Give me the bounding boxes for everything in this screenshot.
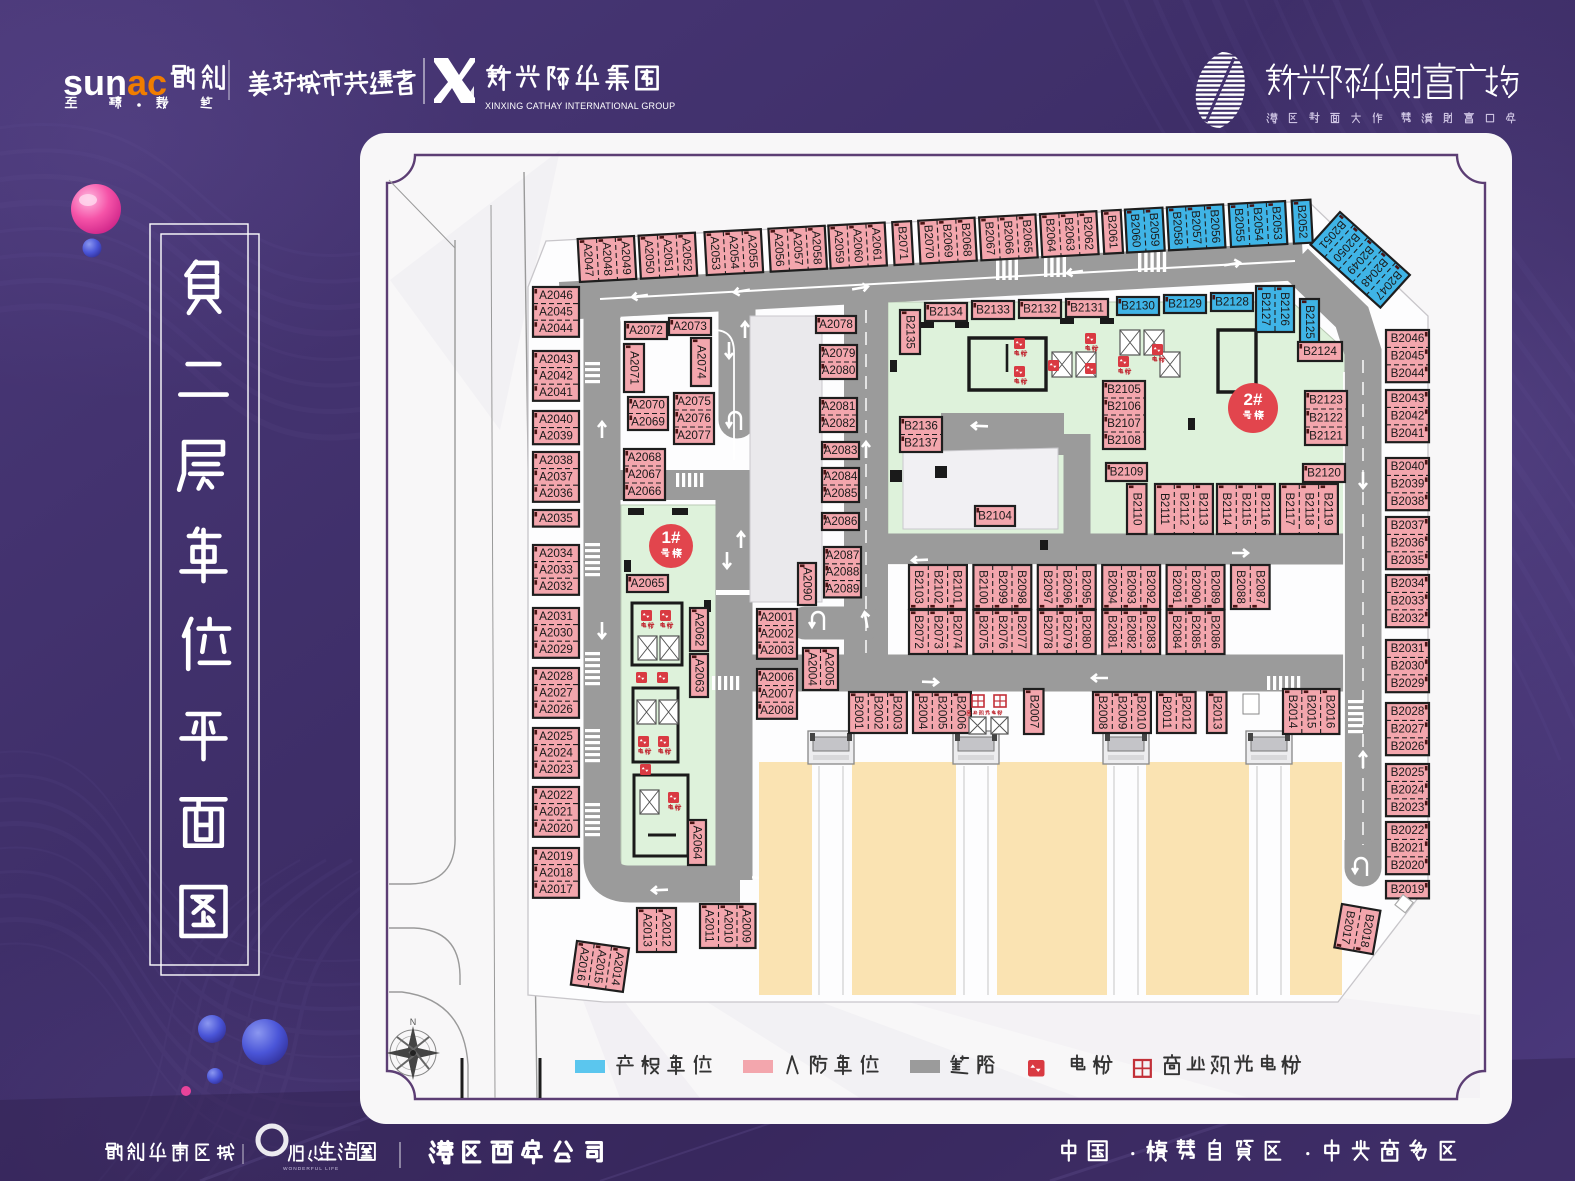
svg-text:B2065: B2065 — [1020, 219, 1035, 254]
svg-text:B2037: B2037 — [1391, 519, 1425, 532]
svg-text:B2012: B2012 — [1180, 696, 1193, 730]
svg-text:WONDERFUL LIFE: WONDERFUL LIFE — [283, 1166, 339, 1172]
svg-text:A2051: A2051 — [660, 238, 675, 272]
svg-text:A2049: A2049 — [618, 241, 633, 275]
svg-text:B2032: B2032 — [1391, 612, 1425, 625]
svg-text:B2023: B2023 — [1391, 801, 1425, 814]
svg-text:A2010: A2010 — [721, 909, 734, 943]
svg-text:B2135: B2135 — [904, 315, 917, 349]
svg-text:B2114: B2114 — [1220, 493, 1233, 526]
svg-text:A2011: A2011 — [703, 910, 716, 943]
svg-text:B2098: B2098 — [1015, 570, 1028, 604]
svg-text:B2126: B2126 — [1278, 292, 1291, 326]
svg-text:A2039: A2039 — [539, 429, 573, 442]
svg-text:B2031: B2031 — [1391, 642, 1425, 655]
svg-text:B2095: B2095 — [1080, 570, 1093, 604]
svg-text:B2057: B2057 — [1189, 210, 1204, 244]
svg-text:A2078: A2078 — [819, 318, 853, 331]
svg-text:B2058: B2058 — [1170, 211, 1185, 245]
svg-text:A2083: A2083 — [824, 444, 858, 457]
svg-text:A2086: A2086 — [824, 515, 858, 528]
svg-text:B2104: B2104 — [978, 510, 1012, 523]
svg-text:B2064: B2064 — [1043, 218, 1058, 253]
svg-text:B2021: B2021 — [1391, 842, 1425, 855]
svg-text:B2084: B2084 — [1170, 615, 1183, 649]
svg-text:B2020: B2020 — [1391, 859, 1425, 872]
svg-text:A2030: A2030 — [539, 626, 573, 639]
svg-text:B2103: B2103 — [912, 570, 925, 604]
svg-text:A2029: A2029 — [539, 643, 573, 656]
svg-text:B2029: B2029 — [1391, 677, 1425, 690]
svg-text:B2134: B2134 — [929, 306, 963, 319]
svg-text:A2057: A2057 — [790, 231, 805, 265]
svg-text:B2001: B2001 — [852, 696, 865, 730]
svg-text:B2052: B2052 — [1295, 204, 1310, 238]
svg-text:B2009: B2009 — [1116, 696, 1129, 730]
svg-text:B2108: B2108 — [1107, 434, 1141, 447]
svg-text:A2077: A2077 — [677, 429, 711, 442]
svg-text:B2062: B2062 — [1081, 216, 1096, 250]
svg-text:A2060: A2060 — [850, 228, 865, 263]
svg-text:B2137: B2137 — [904, 437, 938, 450]
svg-text:B2107: B2107 — [1107, 417, 1141, 430]
svg-text:A2040: A2040 — [539, 413, 573, 426]
svg-text:B2008: B2008 — [1096, 696, 1109, 730]
svg-text:B2014: B2014 — [1286, 695, 1299, 729]
svg-text:B2082: B2082 — [1125, 615, 1138, 649]
svg-text:B2033: B2033 — [1391, 595, 1425, 608]
svg-text:B2043: B2043 — [1391, 392, 1425, 405]
svg-text:B2076: B2076 — [996, 615, 1009, 649]
svg-text:2#: 2# — [1244, 390, 1263, 409]
svg-text:B2053: B2053 — [1269, 206, 1284, 240]
svg-text:B2072: B2072 — [912, 615, 925, 649]
svg-text:A2066: A2066 — [628, 485, 662, 498]
svg-text:A2081: A2081 — [822, 400, 856, 413]
svg-text:A2050: A2050 — [642, 239, 657, 274]
svg-text:B2131: B2131 — [1070, 302, 1104, 315]
svg-text:B2060: B2060 — [1128, 213, 1143, 248]
svg-text:A2001: A2001 — [760, 611, 794, 624]
svg-text:A2079: A2079 — [822, 347, 856, 360]
svg-text:A2006: A2006 — [760, 671, 794, 684]
svg-text:1#: 1# — [662, 528, 681, 547]
svg-text:A2024: A2024 — [539, 746, 573, 759]
svg-text:A2061: A2061 — [869, 227, 884, 261]
svg-text:A2053: A2053 — [708, 236, 723, 270]
svg-text:sunac: sunac — [63, 62, 167, 103]
svg-text:B2059: B2059 — [1147, 212, 1162, 246]
svg-text:A2087: A2087 — [826, 549, 860, 562]
svg-text:B2091: B2091 — [1170, 570, 1183, 604]
svg-text:A2004: A2004 — [805, 652, 818, 686]
svg-text:B2087: B2087 — [1254, 570, 1267, 604]
svg-text:B2026: B2026 — [1391, 740, 1425, 753]
svg-text:A2070: A2070 — [631, 399, 665, 412]
svg-text:B2022: B2022 — [1391, 824, 1425, 837]
svg-text:B2112: B2112 — [1178, 493, 1191, 526]
svg-text:B2035: B2035 — [1391, 554, 1425, 567]
svg-text:A2009: A2009 — [740, 909, 753, 943]
svg-text:A2035: A2035 — [539, 512, 573, 525]
svg-text:A2074: A2074 — [695, 345, 708, 379]
svg-text:A2036: A2036 — [539, 487, 573, 500]
svg-text:A2042: A2042 — [539, 369, 573, 382]
svg-text:B2040: B2040 — [1391, 460, 1425, 473]
svg-text:B2013: B2013 — [1210, 696, 1223, 730]
svg-text:A2032: A2032 — [539, 580, 573, 593]
svg-text:A2068: A2068 — [628, 451, 662, 464]
svg-text:A2052: A2052 — [679, 237, 694, 271]
svg-text:B2121: B2121 — [1309, 430, 1343, 443]
svg-text:B2019: B2019 — [1391, 883, 1425, 896]
svg-text:A2044: A2044 — [539, 322, 573, 335]
svg-text:B2070: B2070 — [921, 224, 936, 259]
svg-text:B2097: B2097 — [1041, 570, 1054, 604]
svg-text:A2021: A2021 — [539, 805, 573, 818]
svg-text:A2018: A2018 — [539, 866, 573, 879]
svg-text:A2075: A2075 — [677, 395, 711, 408]
svg-text:B2128: B2128 — [1215, 296, 1249, 309]
svg-text:B2093: B2093 — [1125, 570, 1138, 604]
svg-text:B2129: B2129 — [1168, 298, 1202, 311]
svg-text:B2105: B2105 — [1107, 383, 1141, 396]
svg-text:B2136: B2136 — [904, 419, 938, 432]
svg-text:A2071: A2071 — [628, 351, 641, 385]
svg-text:B2069: B2069 — [940, 223, 955, 257]
svg-text:B2015: B2015 — [1305, 695, 1318, 729]
svg-text:A2058: A2058 — [809, 230, 824, 264]
svg-text:A2025: A2025 — [539, 730, 573, 743]
svg-text:B2030: B2030 — [1391, 660, 1425, 673]
svg-text:N: N — [410, 1017, 417, 1027]
svg-text:B2045: B2045 — [1391, 350, 1425, 363]
svg-text:A2073: A2073 — [673, 320, 707, 333]
svg-text:B2078: B2078 — [1041, 615, 1054, 649]
svg-text:B2101: B2101 — [951, 570, 964, 604]
svg-text:A2080: A2080 — [822, 364, 856, 377]
svg-text:B2066: B2066 — [1001, 220, 1016, 254]
svg-text:A2065: A2065 — [631, 577, 665, 590]
svg-text:A2043: A2043 — [539, 353, 573, 366]
svg-text:A2084: A2084 — [824, 470, 858, 483]
svg-text:A2072: A2072 — [629, 324, 663, 337]
svg-text:B2094: B2094 — [1105, 570, 1118, 604]
svg-text:B2113: B2113 — [1197, 493, 1210, 526]
svg-text:B2116: B2116 — [1259, 493, 1272, 526]
svg-text:A2046: A2046 — [539, 289, 573, 302]
svg-text:A2027: A2027 — [539, 686, 573, 699]
svg-text:XINXING CATHAY INTERNATIONAL G: XINXING CATHAY INTERNATIONAL GROUP — [485, 101, 675, 111]
svg-text:B2039: B2039 — [1391, 478, 1425, 491]
svg-text:A2003: A2003 — [760, 644, 794, 657]
svg-text:A2054: A2054 — [726, 235, 741, 270]
svg-text:B2085: B2085 — [1189, 615, 1202, 649]
svg-text:B2125: B2125 — [1303, 305, 1316, 339]
svg-text:A2022: A2022 — [539, 789, 573, 802]
svg-text:B2004: B2004 — [916, 696, 929, 730]
svg-text:B2061: B2061 — [1105, 215, 1120, 249]
svg-text:A2059: A2059 — [831, 229, 846, 263]
svg-text:B2054: B2054 — [1251, 207, 1266, 242]
svg-text:A2033: A2033 — [539, 563, 573, 576]
svg-text:B2005: B2005 — [936, 696, 949, 730]
svg-text:B2090: B2090 — [1189, 570, 1202, 604]
svg-text:A2045: A2045 — [539, 305, 573, 318]
svg-text:A2013: A2013 — [640, 913, 653, 947]
svg-text:B2115: B2115 — [1240, 493, 1253, 526]
svg-text:B2130: B2130 — [1121, 300, 1155, 313]
svg-text:B2010: B2010 — [1135, 696, 1148, 730]
svg-text:A2028: A2028 — [539, 670, 573, 683]
svg-text:B2133: B2133 — [976, 304, 1010, 317]
svg-text:A2007: A2007 — [760, 687, 794, 700]
svg-text:B2088: B2088 — [1234, 570, 1247, 604]
svg-text:A2020: A2020 — [539, 822, 573, 835]
svg-text:B2110: B2110 — [1130, 493, 1143, 526]
svg-text:B2122: B2122 — [1309, 412, 1343, 425]
svg-text:B2083: B2083 — [1144, 615, 1157, 649]
svg-text:A2019: A2019 — [539, 850, 573, 863]
svg-text:A2037: A2037 — [539, 470, 573, 483]
svg-text:B2096: B2096 — [1060, 570, 1073, 604]
svg-text:B2024: B2024 — [1391, 784, 1425, 797]
svg-text:A2055: A2055 — [745, 234, 760, 269]
svg-text:B2006: B2006 — [955, 696, 968, 730]
svg-text:B2132: B2132 — [1023, 303, 1057, 316]
svg-text:A2041: A2041 — [539, 386, 573, 399]
svg-text:B2046: B2046 — [1391, 332, 1425, 345]
svg-text:B2077: B2077 — [1015, 615, 1028, 649]
svg-text:B2092: B2092 — [1144, 570, 1157, 604]
svg-text:B2118: B2118 — [1303, 493, 1316, 526]
svg-text:B2109: B2109 — [1110, 466, 1144, 479]
svg-text:B2074: B2074 — [951, 615, 964, 649]
svg-text:B2063: B2063 — [1062, 217, 1077, 251]
svg-text:A2047: A2047 — [581, 243, 596, 277]
svg-text:B2127: B2127 — [1259, 292, 1272, 326]
svg-text:B2003: B2003 — [891, 696, 904, 730]
svg-text:B2034: B2034 — [1391, 577, 1425, 590]
svg-text:B2099: B2099 — [996, 570, 1009, 604]
svg-text:A2002: A2002 — [760, 627, 794, 640]
svg-text:A2023: A2023 — [539, 763, 573, 776]
svg-text:A2038: A2038 — [539, 454, 573, 467]
svg-text:B2011: B2011 — [1160, 696, 1173, 729]
svg-text:A2064: A2064 — [691, 826, 704, 860]
svg-text:B2042: B2042 — [1391, 410, 1425, 423]
svg-text:A2090: A2090 — [801, 567, 814, 601]
svg-text:A2008: A2008 — [760, 704, 794, 717]
svg-text:A2089: A2089 — [826, 583, 860, 596]
svg-text:B2111: B2111 — [1158, 493, 1171, 525]
svg-text:B2036: B2036 — [1391, 537, 1425, 550]
svg-text:B2027: B2027 — [1391, 723, 1425, 736]
svg-text:A2034: A2034 — [539, 547, 573, 560]
svg-text:A2082: A2082 — [822, 417, 856, 430]
svg-text:B2080: B2080 — [1080, 615, 1093, 649]
svg-text:A2017: A2017 — [539, 883, 573, 896]
svg-text:B2075: B2075 — [977, 615, 990, 649]
svg-text:A2012: A2012 — [660, 913, 673, 947]
svg-text:B2079: B2079 — [1060, 615, 1073, 649]
svg-text:B2117: B2117 — [1283, 493, 1296, 526]
svg-text:B2028: B2028 — [1391, 705, 1425, 718]
svg-text:A2031: A2031 — [539, 610, 573, 623]
svg-text:B2086: B2086 — [1208, 615, 1221, 649]
svg-text:A2069: A2069 — [631, 415, 665, 428]
svg-text:B2119: B2119 — [1322, 493, 1335, 526]
svg-text:B2002: B2002 — [872, 696, 885, 730]
svg-text:A2026: A2026 — [539, 703, 573, 716]
svg-text:B2106: B2106 — [1107, 400, 1141, 413]
svg-text:A2048: A2048 — [600, 242, 615, 276]
svg-text:B2007: B2007 — [1027, 695, 1040, 729]
svg-text:B2073: B2073 — [932, 615, 945, 649]
svg-text:B2025: B2025 — [1391, 766, 1425, 779]
svg-text:B2124: B2124 — [1303, 345, 1337, 358]
svg-text:B2068: B2068 — [959, 222, 974, 256]
svg-text:A2063: A2063 — [693, 659, 706, 693]
svg-text:B2067: B2067 — [982, 221, 997, 255]
svg-text:B2038: B2038 — [1391, 495, 1425, 508]
svg-text:A2062: A2062 — [693, 613, 706, 647]
svg-text:B2102: B2102 — [932, 570, 945, 604]
svg-text:B2120: B2120 — [1307, 467, 1341, 480]
svg-text:B2016: B2016 — [1324, 695, 1337, 729]
svg-text:B2041: B2041 — [1391, 427, 1425, 440]
svg-text:B2071: B2071 — [895, 226, 910, 260]
svg-text:A2067: A2067 — [628, 468, 662, 481]
svg-text:B2056: B2056 — [1208, 209, 1223, 243]
svg-text:B2055: B2055 — [1232, 208, 1247, 243]
svg-text:A2085: A2085 — [824, 487, 858, 500]
svg-text:A2005: A2005 — [823, 652, 836, 686]
svg-text:A2076: A2076 — [677, 412, 711, 425]
svg-text:B2044: B2044 — [1391, 367, 1425, 380]
svg-text:B2100: B2100 — [977, 570, 990, 604]
svg-text:B2123: B2123 — [1309, 394, 1343, 407]
svg-text:B2089: B2089 — [1208, 570, 1221, 604]
svg-text:A2056: A2056 — [772, 233, 787, 267]
svg-text:B2081: B2081 — [1105, 615, 1118, 649]
svg-text:A2088: A2088 — [826, 566, 860, 579]
